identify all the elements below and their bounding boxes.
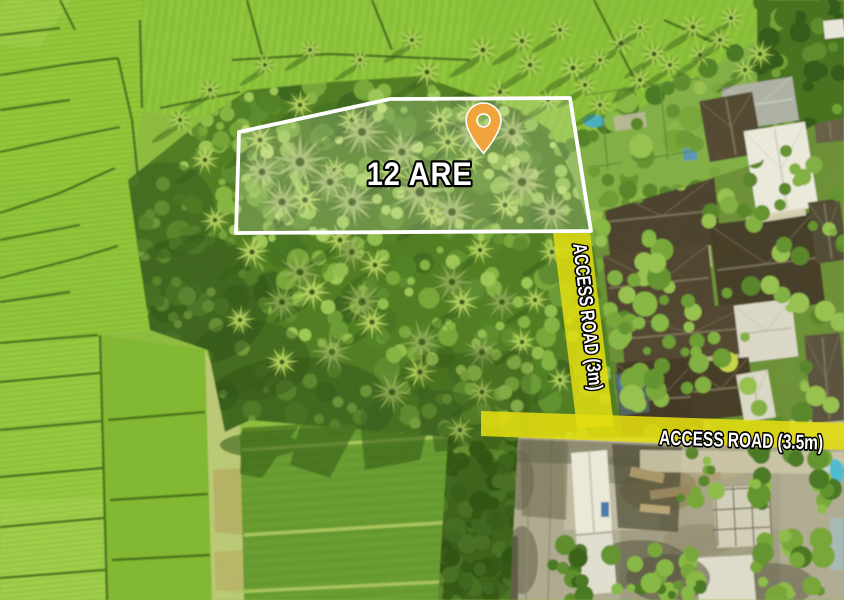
svg-text:12 ARE: 12 ARE bbox=[367, 156, 473, 192]
